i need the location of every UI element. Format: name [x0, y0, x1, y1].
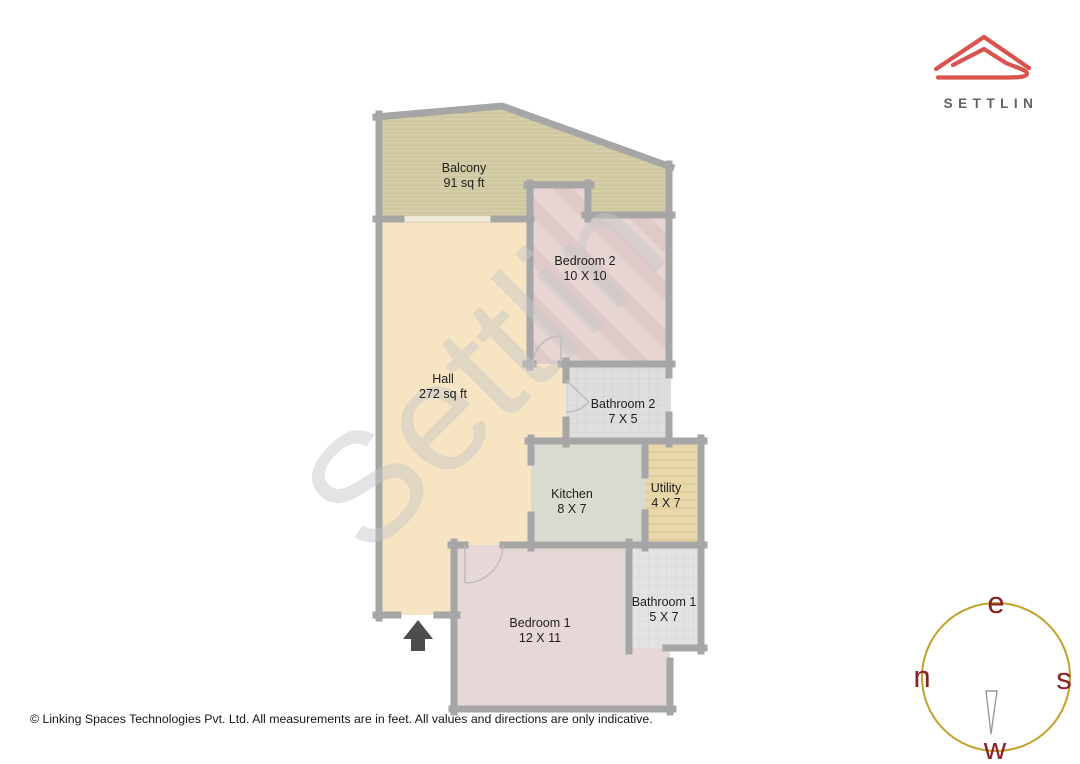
entrance-arrow-icon: [403, 620, 433, 651]
compass-south-label: s: [1056, 661, 1072, 696]
room-balcony-texture: [376, 103, 672, 219]
brand-logo: SETTLIN: [936, 37, 1038, 111]
room-hall-size-label: 272 sq ft: [419, 387, 467, 401]
floor-plan-svg: SETTLIN Settlin Balcony 91 sq ft Be: [0, 0, 1080, 764]
compass-north-label: n: [913, 659, 930, 694]
room-bedroom1-size-label: 12 X 11: [519, 631, 561, 645]
room-hall-name-label: Hall: [432, 372, 454, 386]
compass-west-label: w: [983, 731, 1007, 764]
room-bedroom1-name-label: Bedroom 1: [509, 616, 570, 630]
balcony-window: [401, 216, 494, 222]
room-utility-name-label: Utility: [651, 481, 682, 495]
room-balcony-size-label: 91 sq ft: [444, 176, 486, 190]
room-bathroom2-size-label: 7 X 5: [608, 412, 637, 426]
room-bedroom2-size-label: 10 X 10: [563, 269, 606, 283]
brand-roof-icon: [936, 37, 1029, 78]
compass-needle-icon: [986, 691, 997, 734]
room-balcony-name-label: Balcony: [442, 161, 487, 175]
room-utility-size-label: 4 X 7: [651, 496, 680, 510]
room-bathroom1-name-label: Bathroom 1: [632, 595, 697, 609]
floor-plan-page: SETTLIN Settlin Balcony 91 sq ft Be: [0, 0, 1080, 764]
compass: e n s w: [913, 585, 1071, 764]
room-bathroom2-name-label: Bathroom 2: [591, 397, 656, 411]
room-bedroom2-name-label: Bedroom 2: [554, 254, 615, 268]
copyright-text: © Linking Spaces Technologies Pvt. Ltd. …: [30, 712, 653, 726]
compass-east-label: e: [987, 585, 1004, 620]
room-bathroom1-size-label: 5 X 7: [649, 610, 678, 624]
room-kitchen-name-label: Kitchen: [551, 487, 593, 501]
compass-ring: [922, 603, 1070, 751]
brand-name: SETTLIN: [944, 96, 1039, 111]
room-kitchen-size-label: 8 X 7: [557, 502, 586, 516]
